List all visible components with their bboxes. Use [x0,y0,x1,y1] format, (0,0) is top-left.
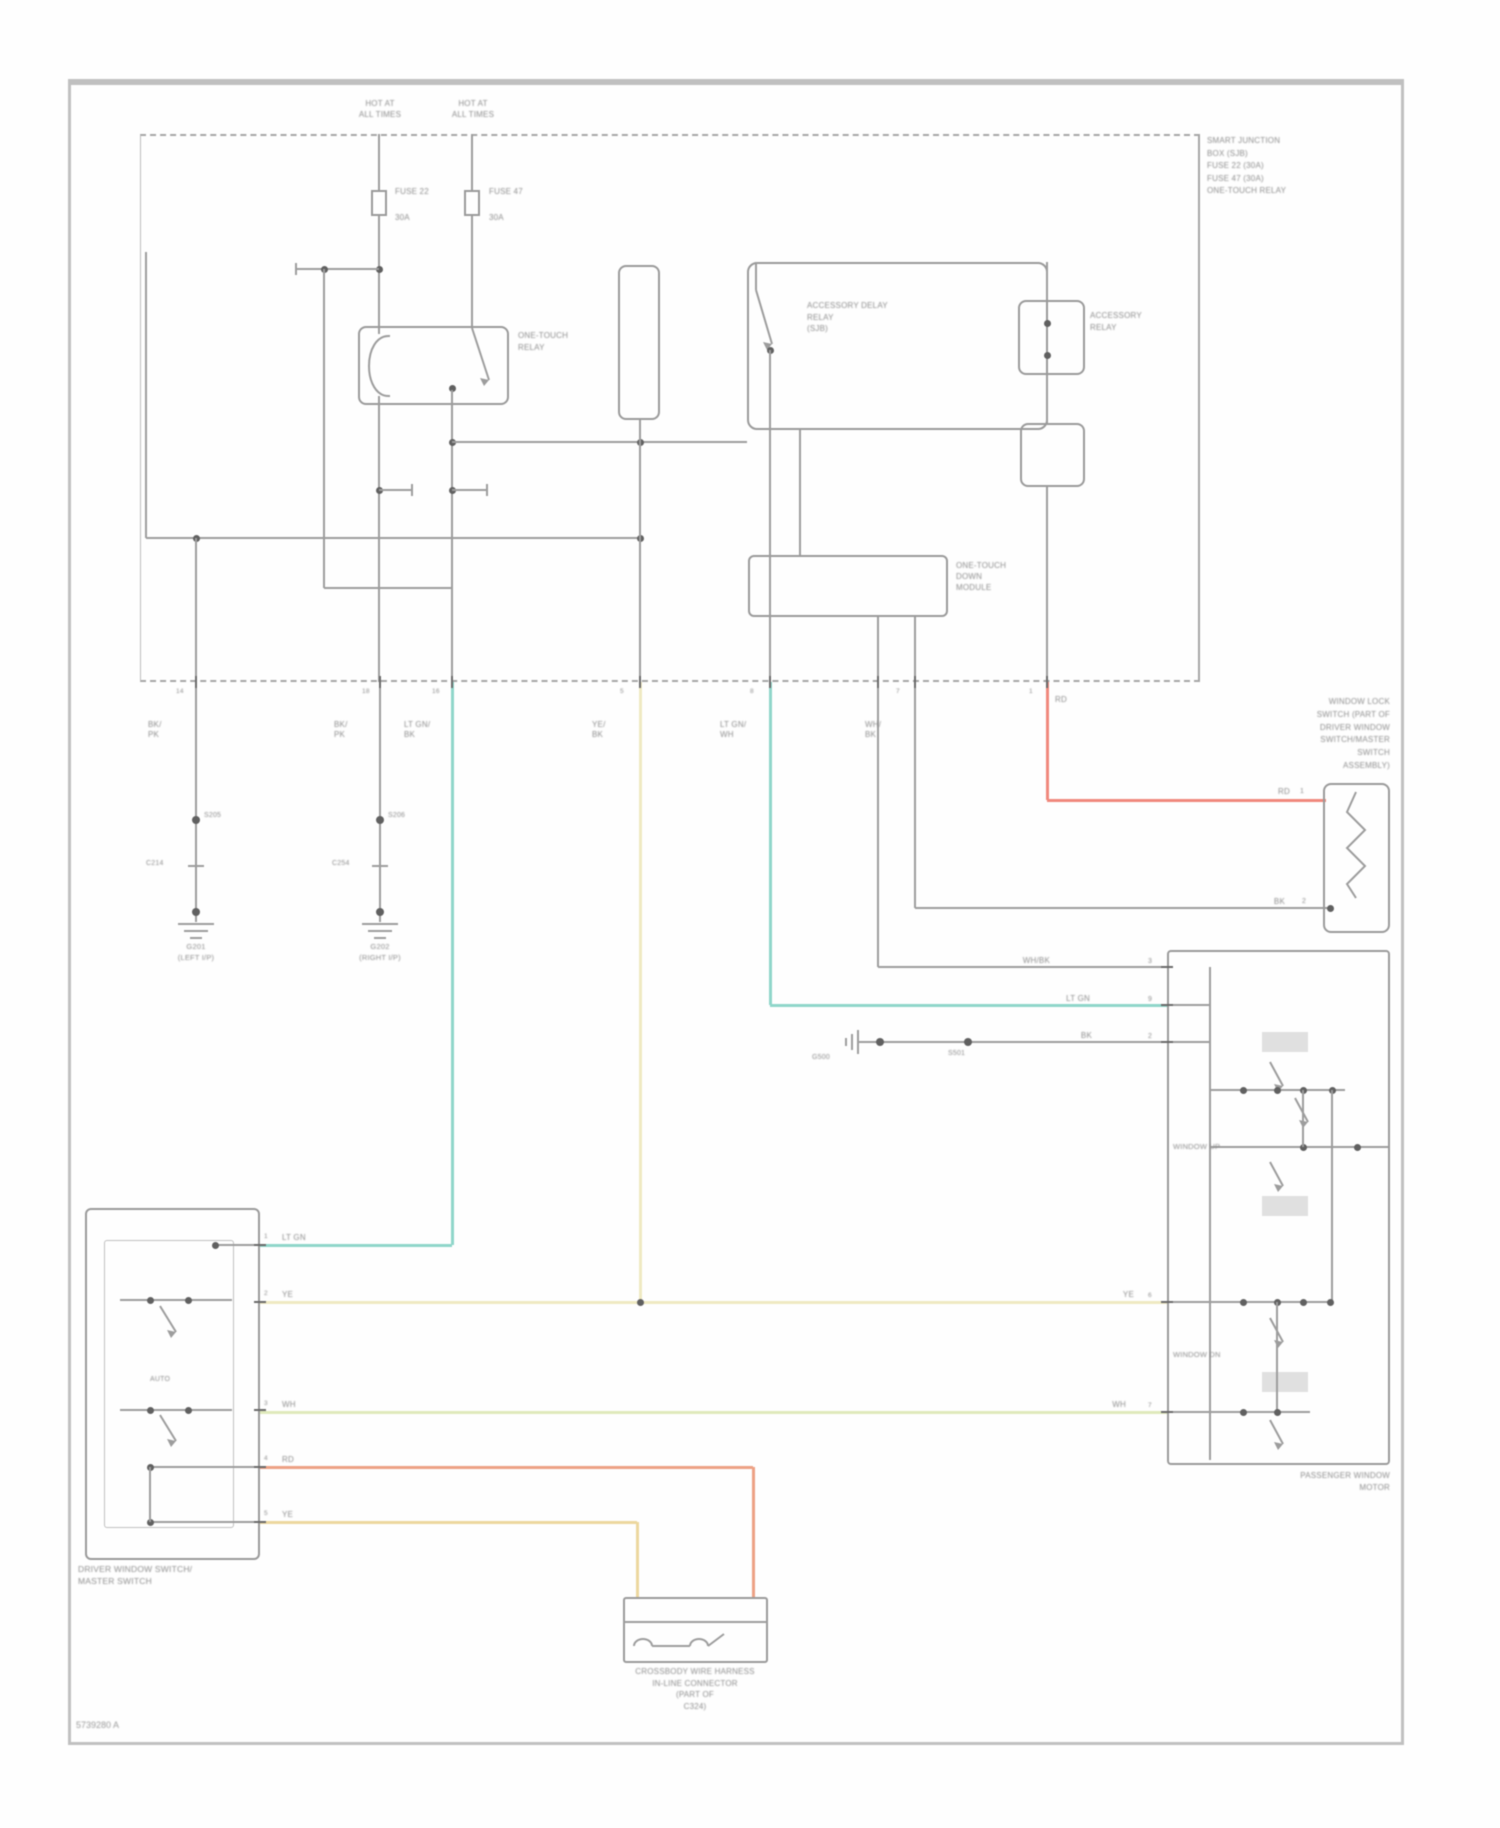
wire-segment [254,1521,266,1523]
diagram-label: 14 [176,686,184,697]
wire-segment [915,907,1330,909]
diagram-label: 30A [395,212,410,223]
wire-segment [799,430,801,555]
relay-box [358,326,509,405]
motor-block [1262,1196,1308,1216]
diagram-label: G202(RIGHT I/P) [330,942,430,963]
red-wire [1047,799,1326,802]
diagram-label: YE [282,1509,293,1520]
diagram-label: WINDOW DN [1173,1349,1221,1360]
wire-segment [295,263,297,275]
diagram-label: G201(LEFT I/P) [146,942,246,963]
wire-segment [149,1467,151,1522]
diagram-label: 18 [362,686,370,697]
junction-dot [1240,1087,1247,1094]
wire-segment [1161,966,1173,968]
diagram-label: LT GN [1030,993,1090,1004]
wire-segment [1167,1301,1333,1303]
wire-segment [1161,1004,1173,1006]
junction-dot [147,1407,154,1414]
wire-segment [372,865,388,867]
diagram-label: BK/PK [334,720,348,740]
diagram-label: ACCESSORY DELAYRELAY(SJB) [807,300,888,335]
amber-wire [636,1522,639,1597]
teal-wire [769,682,772,1005]
wire-segment [858,1041,1167,1043]
teal-wire [770,1004,1167,1007]
diagram-label: YE/BK [592,720,606,740]
wire-segment [254,1301,266,1303]
diagram-label: WH/BK [990,955,1050,966]
junction-dot [192,908,200,916]
diagram-label: S206 [388,810,405,821]
wire-segment [378,216,380,334]
wire-segment [914,676,916,688]
junction-dot [1274,1409,1281,1416]
diagram-label: C254 [332,858,350,869]
wire-segment [379,489,412,491]
wire-segment [378,396,380,682]
inline-connector-box [623,1597,768,1663]
diagram-label: ACCESSORYRELAY [1090,310,1142,333]
diagram-label: HOT ATALL TIMES [332,98,428,120]
teal-wire [260,1244,452,1247]
diagram-label: 2 [264,1288,268,1299]
wire-segment [877,676,879,688]
diagram-label: LT GN/WH [720,720,746,740]
junction-dot [876,1038,884,1046]
diagram-label: 6 [1148,1290,1152,1301]
diagram-label: 7 [896,686,900,697]
pale-yellow-wire [639,682,642,1302]
junction-dot [1274,1087,1281,1094]
wire-segment [1302,1090,1304,1147]
component-tall-box [618,265,660,420]
wire-segment [623,1621,768,1623]
orange-wire [260,1466,753,1469]
diagram-label: AUTO [150,1374,170,1385]
module-wide-box [748,555,948,617]
junction-dot [1240,1409,1247,1416]
wire-segment [1046,375,1048,423]
diagram-label: 4 [264,1453,268,1464]
diagram-label: DRIVER WINDOW SWITCH/MASTER SWITCH [78,1564,192,1587]
diagram-label: 2 [1302,896,1306,907]
amber-wire [260,1521,637,1524]
diagram-label: ONE-TOUCHDOWNMODULE [956,560,1006,593]
wire-segment [195,682,197,912]
wire-segment [379,676,381,688]
wire-segment [639,420,641,682]
wire-segment [150,1466,260,1468]
wire-segment [188,865,204,867]
wire-segment [1046,487,1048,682]
wire-segment [1167,1041,1210,1043]
fuse-1-symbol [371,190,387,216]
lock-switch-box [1323,783,1390,933]
wire-segment [323,269,325,588]
wire-segment [120,1299,232,1301]
diagram-label: 7 [1148,1400,1152,1411]
diagram-label: BK [1032,1030,1092,1041]
wire-segment [486,484,488,496]
wire-segment [471,216,473,328]
relay-small-box-1 [1018,300,1085,375]
diagram-label: 1 [264,1231,268,1242]
diagram-label: FUSE 22 [395,186,429,197]
diagram-label: S501 [948,1048,965,1059]
diagram-label: 8 [750,686,754,697]
junction-dot [1044,352,1051,359]
pale-yellow-wire [260,1301,1167,1304]
wire-segment [452,441,747,443]
diagram-label: 5 [620,686,624,697]
junction-dot [1044,320,1051,327]
junction-dot [376,816,384,824]
wire-segment [1167,1004,1210,1006]
diagram-label: YE [282,1289,293,1300]
diagram-label: LT GN [282,1232,306,1243]
diagram-label: FUSE 47 [489,186,523,197]
wire-segment [471,134,473,190]
wire-segment [878,966,1167,968]
diagram-label: YE [1094,1289,1134,1300]
motor-block [1262,1032,1308,1052]
wire-segment [1331,1090,1333,1302]
wire-segment [877,617,879,967]
wire-segment [769,350,771,430]
wire-segment [1161,1041,1173,1043]
fuse-2-symbol [464,190,480,216]
wire-segment [254,1409,266,1411]
diagram-label: 2 [1148,1031,1152,1042]
diagram-label: 1 [1300,786,1304,797]
wire-segment [1046,262,1048,300]
wire-segment [120,1409,232,1411]
wire-segment [451,676,453,688]
junction-dot [185,1407,192,1414]
wire-segment [1167,1411,1310,1413]
diagram-label: WH [1086,1399,1126,1410]
junction-dot [637,1299,644,1306]
page-border-top [68,79,1404,85]
diagram-label: C214 [146,858,164,869]
wire-segment [1046,676,1048,688]
wire-segment [378,134,380,190]
orange-wire [752,1467,755,1597]
junction-dot [1327,1299,1334,1306]
junction-dot [376,908,384,916]
junction-dot [192,816,200,824]
diagram-label: 5 [264,1508,268,1519]
junction-dot [212,1242,219,1249]
junction-dot [1354,1144,1361,1151]
diagram-label: 1 [1029,686,1033,697]
diagram-label: 30A [489,212,504,223]
module-box [747,262,1048,430]
motor-block [1262,1372,1308,1392]
diagram-label: ONE-TOUCHRELAY [518,330,568,354]
diagram-label: 16 [432,686,440,697]
diagram-label: HOT ATALL TIMES [425,98,521,120]
teal-wire [451,682,454,1245]
diagram-label: SMART JUNCTIONBOX (SJB)FUSE 22 (30A)FUSE… [1207,135,1286,198]
wire-segment [769,430,771,682]
junction-dot [147,1297,154,1304]
diagram-label: RD [282,1454,294,1465]
pale-green-wire [260,1411,1167,1414]
diagram-label: PASSENGER WINDOWMOTOR [1240,1470,1390,1493]
wire-segment [914,617,916,908]
diagram-label: BK/PK [148,720,162,740]
wire-segment [324,587,452,589]
diagram-label: CROSSBODY WIRE HARNESSIN-LINE CONNECTOR(… [600,1666,790,1712]
wire-segment [755,262,757,290]
wire-segment [1276,1302,1278,1412]
diagram-label: RD [1055,694,1067,705]
diagram-label: WINDOW LOCKSWITCH (PART OFDRIVER WINDOWS… [1243,696,1390,773]
wire-segment [146,537,640,539]
wire-segment [150,1521,260,1523]
diagram-label: WH [282,1399,296,1410]
junction-dot [1240,1299,1247,1306]
wire-segment [254,1466,266,1468]
wire-segment [1161,1411,1173,1413]
wire-segment [451,390,453,682]
wire-segment [254,1244,266,1246]
diagram-label: 9 [1148,994,1152,1005]
diagram-label: WH/BK [865,720,881,740]
diagram-label: G500 [812,1052,830,1063]
diagram-label: 3 [264,1398,268,1409]
wire-segment [769,676,771,688]
wire-segment [1161,1301,1173,1303]
diagram-label: LT GN/BK [404,720,430,740]
wiring-diagram: 5739280 A HOT ATALL TIMESHOT ATALL TIMES… [0,0,1500,1828]
diagram-label: 3 [1148,956,1152,967]
junction-dot [964,1038,972,1046]
junction-dot [185,1297,192,1304]
wire-segment [195,676,197,688]
relay-small-box-2 [1020,423,1085,487]
red-wire [1046,682,1049,800]
diagram-label: S205 [204,810,221,821]
wire-segment [639,676,641,688]
wire-segment [297,268,379,270]
diagram-label: BK [1225,896,1285,907]
wire-segment [145,252,147,538]
diagram-label: WINDOW UP [1173,1141,1220,1152]
wire-segment [379,682,381,912]
junction-dot [1300,1299,1307,1306]
wire-segment [452,489,487,491]
diagram-label: RD [1230,786,1290,797]
wire-segment [195,538,197,682]
wire-segment [411,484,413,496]
